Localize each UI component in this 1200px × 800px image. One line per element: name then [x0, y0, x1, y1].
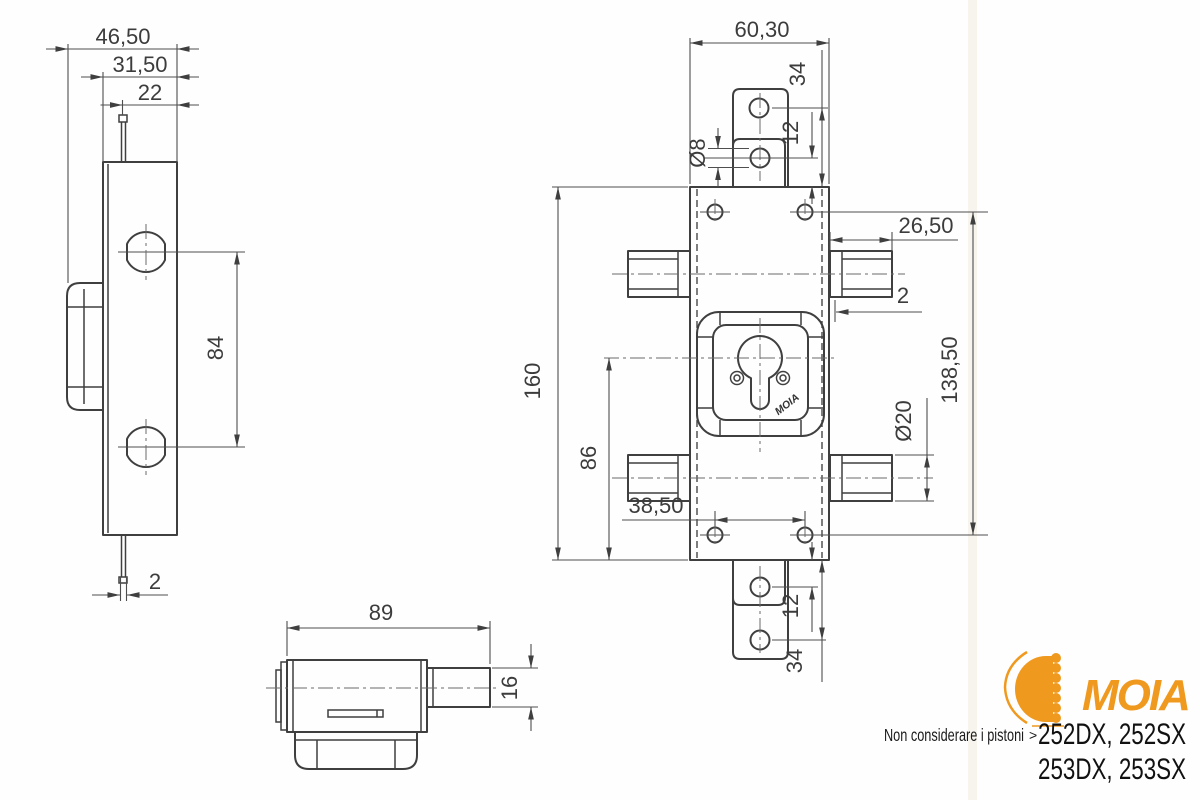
dim-front-tab-gap-top: 12 — [778, 121, 803, 145]
key-head-icon — [1015, 656, 1046, 722]
tab-hole-top-1 — [750, 99, 769, 118]
dim-side-hole-spacing: 84 — [203, 336, 228, 360]
side-pin-top-cap — [119, 115, 127, 122]
brand-logo-text: MOIA — [1082, 671, 1189, 720]
dim-front-width: 60,30 — [734, 17, 789, 42]
dim-bottom-bolt-height: 16 — [497, 676, 522, 700]
dim-side-body: 31,50 — [112, 52, 167, 77]
brand-logo: MOIA — [1005, 652, 1189, 726]
dim-front-tab-gap-bottom: 12 — [778, 594, 803, 618]
dim-bottom-overall: 89 — [369, 600, 393, 625]
dim-front-tab-edge-top: 34 — [785, 62, 810, 86]
dim-front-tab-edge-bottom: 34 — [782, 649, 807, 673]
front-view: MOIA — [520, 17, 988, 682]
bottom-cylinder-housing — [295, 732, 417, 769]
bottom-body — [287, 660, 427, 732]
dim-front-holes-v: 138,50 — [937, 336, 962, 403]
screw-right — [777, 372, 790, 385]
note-models-line1: 252DX, 252SX — [1038, 718, 1186, 751]
dim-front-holes-h: 38,50 — [628, 493, 683, 518]
screw-left — [731, 372, 744, 385]
dim-front-cyl-to-bottom: 86 — [576, 446, 601, 470]
side-cylinder-protrusion — [67, 283, 103, 410]
brand-stamp: MOIA — [773, 391, 802, 417]
note-models-line2: 253DX, 253SX — [1038, 753, 1186, 786]
note-block: Non considerare i pistoni ˃ 252DX, 252SX… — [884, 718, 1186, 786]
dim-front-bolt-length: 26,50 — [898, 213, 953, 238]
dim-front-height: 160 — [520, 363, 545, 400]
dim-front-bolt-dia: Ø20 — [891, 400, 916, 442]
technical-drawing: 46,50 31,50 22 84 2 89 16 — [0, 0, 1200, 800]
note-text: Non considerare i pistoni — [884, 725, 1024, 745]
bottom-view: 89 16 — [266, 600, 538, 769]
side-view: 46,50 31,50 22 84 2 — [46, 24, 245, 601]
dim-side-overall: 46,50 — [95, 24, 150, 49]
drawing-page: 46,50 31,50 22 84 2 89 16 — [0, 0, 1200, 800]
dim-front-lip: 2 — [897, 283, 909, 308]
dim-front-tab-hole-dia: Ø8 — [685, 138, 710, 167]
side-body — [103, 162, 177, 535]
bottom-slot — [328, 710, 383, 717]
dim-side-pin-offset: 22 — [138, 80, 162, 105]
dim-side-pin-width: 2 — [149, 569, 161, 594]
note-arrow: ˃ — [1029, 727, 1037, 743]
